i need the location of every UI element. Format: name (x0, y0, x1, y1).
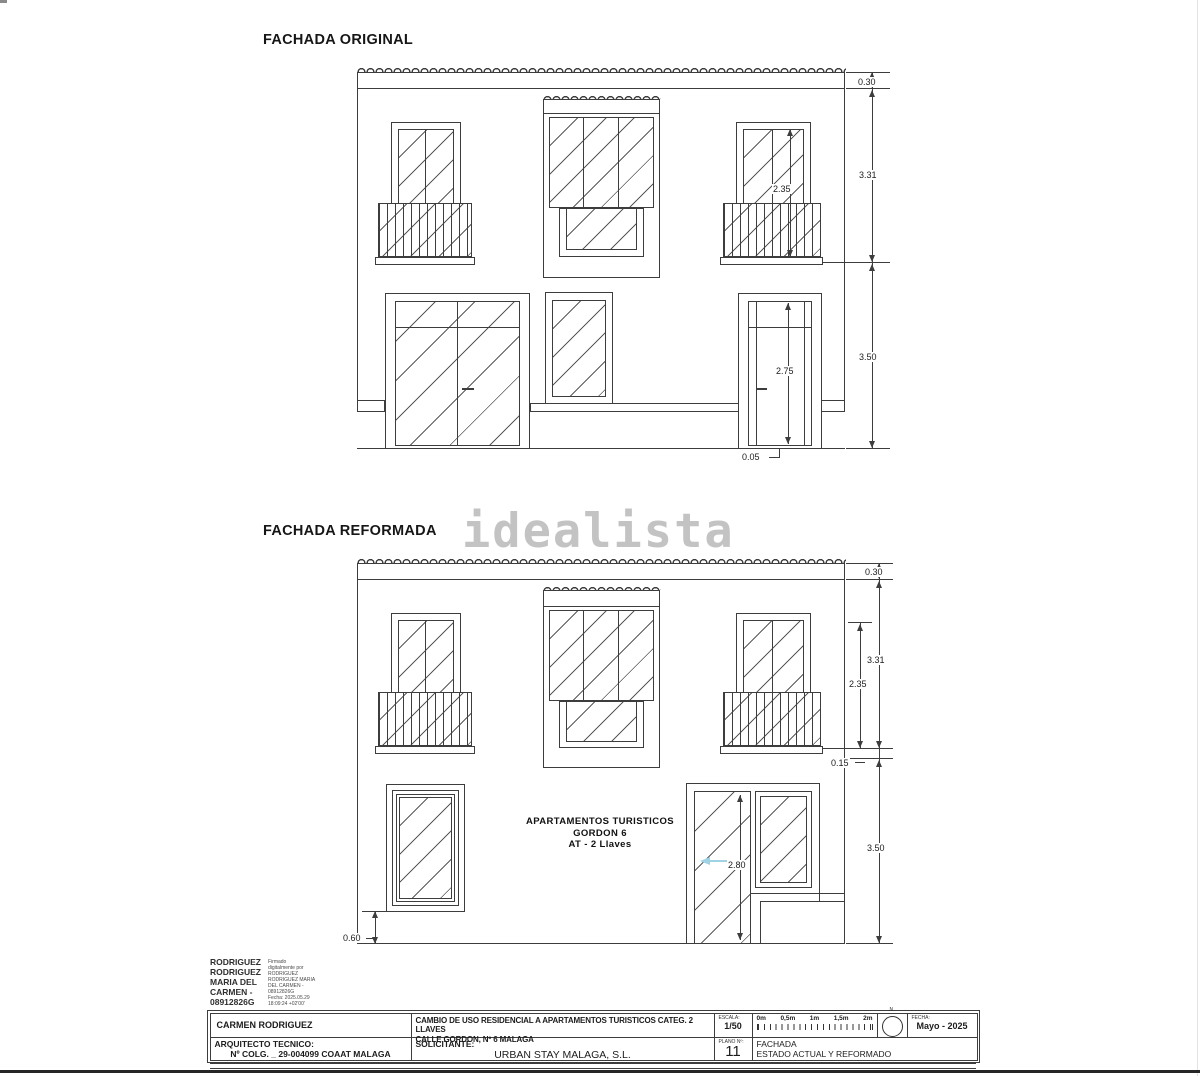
project-cell: CAMBIO DE USO RESIDENCIAL A APARTAMENTOS… (411, 1014, 714, 1037)
dim-arrow (372, 937, 378, 944)
ext-line (846, 88, 890, 89)
dim-arrow (785, 303, 791, 310)
dim-arrow (876, 741, 882, 748)
dim-arrow (869, 90, 875, 97)
scale-tick-label: 0,5m (780, 1015, 795, 1023)
sheet-number: 11 (719, 1045, 748, 1059)
client-value: URBAN STAY MALAGA, S.L. (416, 1049, 710, 1060)
date-value: Mayo - 2025 (912, 1021, 973, 1031)
stamp-line: 18:09:24 +02'00' (268, 1001, 315, 1007)
dim-label-upper-floor: 3.31 (858, 170, 878, 180)
client-cell: SOLICITANTE: URBAN STAY MALAGA, S.L. (411, 1038, 714, 1060)
signer-name-line: RODRIGUEZ (210, 957, 261, 967)
dim-leader (779, 449, 780, 458)
street-line (357, 448, 845, 449)
dim-arrow (876, 936, 882, 943)
dim-label-sill: 0.60 (342, 933, 362, 943)
dim-label-window-height: 2.35 (848, 679, 868, 689)
dim-arrow (372, 911, 378, 918)
digital-signature-block: RODRIGUEZ RODRIGUEZ MARIA DEL CARMEN - 0… (210, 957, 315, 1007)
dim-arrow (876, 581, 882, 588)
dim-arrow (787, 129, 793, 136)
title-block-row1: CARMEN RODRIGUEZ CAMBIO DE USO RESIDENCI… (211, 1014, 977, 1037)
architect-label: ARQUITECTO TECNICO: (215, 1039, 314, 1049)
bay-lower-glass (566, 208, 637, 250)
lower-wall (760, 901, 845, 944)
bay-mullion (583, 117, 584, 208)
title-block-row2: ARQUITECTO TECNICO: Nº COLG. _ 29-004099… (211, 1037, 977, 1060)
bay-lower-glass (566, 701, 637, 742)
dim-label-ground-floor: 3.50 (866, 843, 886, 853)
dim-arrow (869, 255, 875, 262)
dim-label-cornice: 0.30 (864, 567, 884, 577)
scale-cell: ESCALA: 1/50 (714, 1014, 752, 1037)
idealista-watermark: idealista (462, 504, 735, 559)
door-frame-line (804, 301, 805, 446)
balcony-railing (378, 203, 472, 257)
scale-value: 1/50 (719, 1021, 748, 1031)
client-label: SOLICITANTE: (416, 1039, 475, 1049)
plinth-block (357, 400, 385, 412)
signer-name-line: RODRIGUEZ (210, 967, 261, 977)
ext-line (846, 448, 890, 449)
scale-tick-label: 2m (863, 1015, 872, 1023)
author-cell: CARMEN RODRIGUEZ (211, 1014, 411, 1037)
dim-label-ground-floor: 3.50 (858, 352, 878, 362)
sheet-number-cell: PLANO Nº: 11 (714, 1038, 752, 1060)
window-glass (760, 796, 807, 883)
scale-tick-label: 0m (757, 1015, 766, 1023)
ext-line (846, 72, 890, 73)
balcony-railing (378, 692, 472, 746)
title-block-underline (210, 1063, 976, 1069)
ext-line (362, 911, 414, 912)
dim-arrow (876, 760, 882, 767)
dim-label-window-height: 2.35 (772, 184, 792, 194)
bay-glass (549, 117, 654, 208)
balcony-base (375, 746, 475, 754)
dim-label-door-height: 2.75 (775, 366, 795, 376)
plinth-band (530, 403, 739, 412)
cornice-scallops (357, 554, 846, 563)
scale-ruler (757, 1024, 873, 1030)
title-block-inner: CARMEN RODRIGUEZ CAMBIO DE USO RESIDENCI… (210, 1013, 978, 1061)
north-cell: N. (877, 1014, 907, 1037)
ext-line (823, 748, 893, 749)
signer-name: RODRIGUEZ RODRIGUEZ MARIA DEL CARMEN - 0… (210, 957, 261, 1007)
signature-stamp-text: Firmado digitalmente por RODRIGUEZ RODRI… (268, 957, 315, 1007)
dim-arrow (869, 441, 875, 448)
scan-artifact (0, 0, 7, 3)
bay-cornice-band (543, 590, 660, 607)
balcony-base (375, 257, 475, 265)
cornice-scallops (357, 63, 846, 72)
dim-arrow (787, 250, 793, 257)
reformed-facade-title: FACHADA REFORMADA (263, 523, 437, 539)
wall-step-line (751, 893, 845, 894)
balcony-railing (723, 203, 821, 257)
scale-tick-label: 1m (810, 1015, 819, 1023)
ext-line (846, 943, 893, 944)
bay-mullion (618, 117, 619, 208)
ext-line (823, 262, 890, 263)
page-right-edge (1197, 0, 1198, 1076)
cornice-band (357, 563, 845, 580)
balcony-base (720, 746, 823, 754)
dim-arrow (857, 741, 863, 748)
dim-label-upper-floor: 3.31 (866, 655, 886, 665)
dim-arrow (869, 264, 875, 271)
architect-value: Nº COLG. _ 29-004099 COAAT MALAGA (215, 1049, 407, 1059)
date-cell: FECHA: Mayo - 2025 (907, 1014, 977, 1037)
door-frame-line (756, 301, 757, 446)
dim-leader (855, 762, 865, 763)
bay-cornice-scallops (543, 582, 661, 590)
project-line1: CAMBIO DE USO RESIDENCIAL A APARTAMENTOS… (416, 1016, 710, 1035)
scale-bar: 0m 0,5m 1m 1,5m 2m (752, 1014, 877, 1037)
window-glass (552, 300, 606, 397)
signer-name-line: MARIA DEL (210, 977, 261, 987)
dim-label-cornice: 0.30 (857, 77, 877, 87)
door-transom (748, 327, 812, 328)
dim-arrow (737, 933, 743, 940)
window-glass (399, 797, 452, 899)
cornice-band (357, 72, 845, 89)
sheet-title-line1: FACHADA (757, 1039, 973, 1049)
door-handle (757, 388, 767, 390)
plinth-block (821, 400, 845, 412)
dim-arrow (857, 624, 863, 631)
ext-line (846, 563, 893, 564)
sheet-title-cell: FACHADA ESTADO ACTUAL Y REFORMADO (752, 1038, 977, 1060)
bay-cornice-scallops (543, 91, 661, 99)
bay-mullion (583, 610, 584, 701)
dim-label-threshold: 0.05 (741, 452, 761, 462)
sheet-title-line2: ESTADO ACTUAL Y REFORMADO (757, 1049, 973, 1059)
dim-arrow (737, 795, 743, 802)
bay-cornice-band (543, 99, 660, 114)
plan-sheet: idealista FACHADA ORIGINAL (0, 0, 1200, 1076)
ext-line (848, 758, 893, 759)
architect-cell: ARQUITECTO TECNICO: Nº COLG. _ 29-004099… (211, 1038, 411, 1060)
dim-label-floor-gap: 0.15 (830, 758, 850, 768)
door-mullion (457, 301, 458, 446)
balcony-railing (723, 692, 821, 746)
original-facade-title: FACHADA ORIGINAL (263, 32, 413, 48)
door-handle (462, 388, 474, 390)
scale-tick-label: 1,5m (834, 1015, 849, 1023)
signer-name-line: 08912826G (210, 997, 261, 1007)
title-block: CARMEN RODRIGUEZ CAMBIO DE USO RESIDENCI… (207, 1010, 980, 1063)
signer-name-line: CARMEN - (210, 987, 261, 997)
page-bottom-edge (0, 1070, 1200, 1073)
north-indicator-icon (882, 1016, 903, 1037)
bay-glass (549, 610, 654, 701)
dim-arrow (785, 437, 791, 444)
balcony-base (720, 257, 823, 265)
ext-line (846, 579, 893, 580)
dim-leader (769, 457, 779, 458)
scale-bar-labels: 0m 0,5m 1m 1,5m 2m (757, 1015, 873, 1023)
north-label: N. (890, 1007, 895, 1013)
bay-mullion (618, 610, 619, 701)
dim-label-door-height: 2.80 (727, 860, 747, 870)
dim-line (879, 563, 880, 944)
